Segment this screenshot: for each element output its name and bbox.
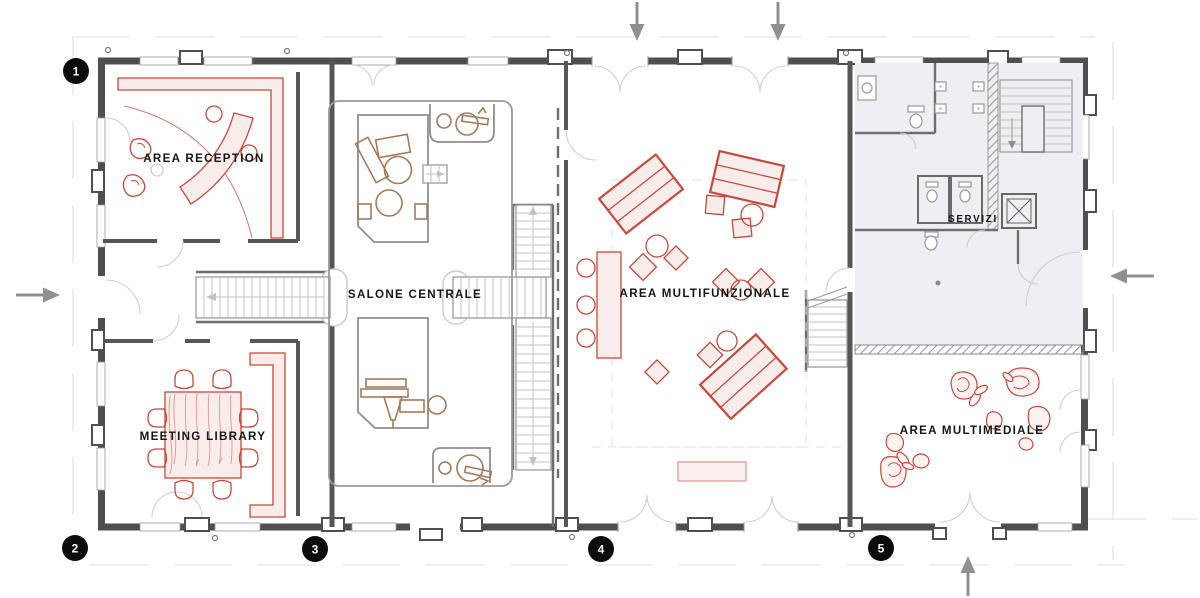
- svg-text:3: 3: [312, 543, 319, 557]
- corridor-stairs-left: [196, 269, 347, 326]
- entrance-arrow-bottom-icon: [961, 556, 976, 596]
- svg-text:2: 2: [72, 542, 79, 556]
- elevator-icon: [1002, 194, 1036, 228]
- marker-2: 2: [62, 535, 88, 561]
- floor-plan: AREA RECEPTION SALONE CENTRALE AREA MULT…: [0, 0, 1200, 598]
- entrance-arrow-top-right-icon: [771, 2, 786, 41]
- room-servizi: [855, 63, 1083, 354]
- label-area-multifunzionale: AREA MULTIFUNZIONALE: [620, 287, 791, 300]
- floor-plan-drawing: AREA RECEPTION SALONE CENTRALE AREA MULT…: [0, 0, 1200, 598]
- svg-text:5: 5: [878, 542, 885, 556]
- label-area-multimediale: AREA MULTIMEDIALE: [900, 424, 1044, 437]
- marker-3: 3: [302, 536, 328, 562]
- side-stairs: [806, 287, 847, 372]
- entrance-arrow-left-icon: [16, 288, 60, 303]
- entrance-arrow-right-icon: [1110, 269, 1154, 284]
- svg-text:1: 1: [73, 65, 80, 79]
- marker-1: 1: [63, 58, 89, 84]
- long-table: [597, 252, 621, 358]
- label-area-reception: AREA RECEPTION: [143, 152, 264, 165]
- entrance-arrow-top-left-icon: [630, 2, 645, 41]
- label-meeting-library: MEETING LIBRARY: [140, 430, 267, 443]
- svg-text:4: 4: [598, 543, 605, 557]
- label-servizi: SERVIZI: [948, 214, 998, 225]
- marker-5: 5: [868, 535, 894, 561]
- marker-4: 4: [588, 536, 614, 562]
- floor-mat: [678, 462, 746, 481]
- label-salone-centrale: SALONE CENTRALE: [348, 288, 482, 301]
